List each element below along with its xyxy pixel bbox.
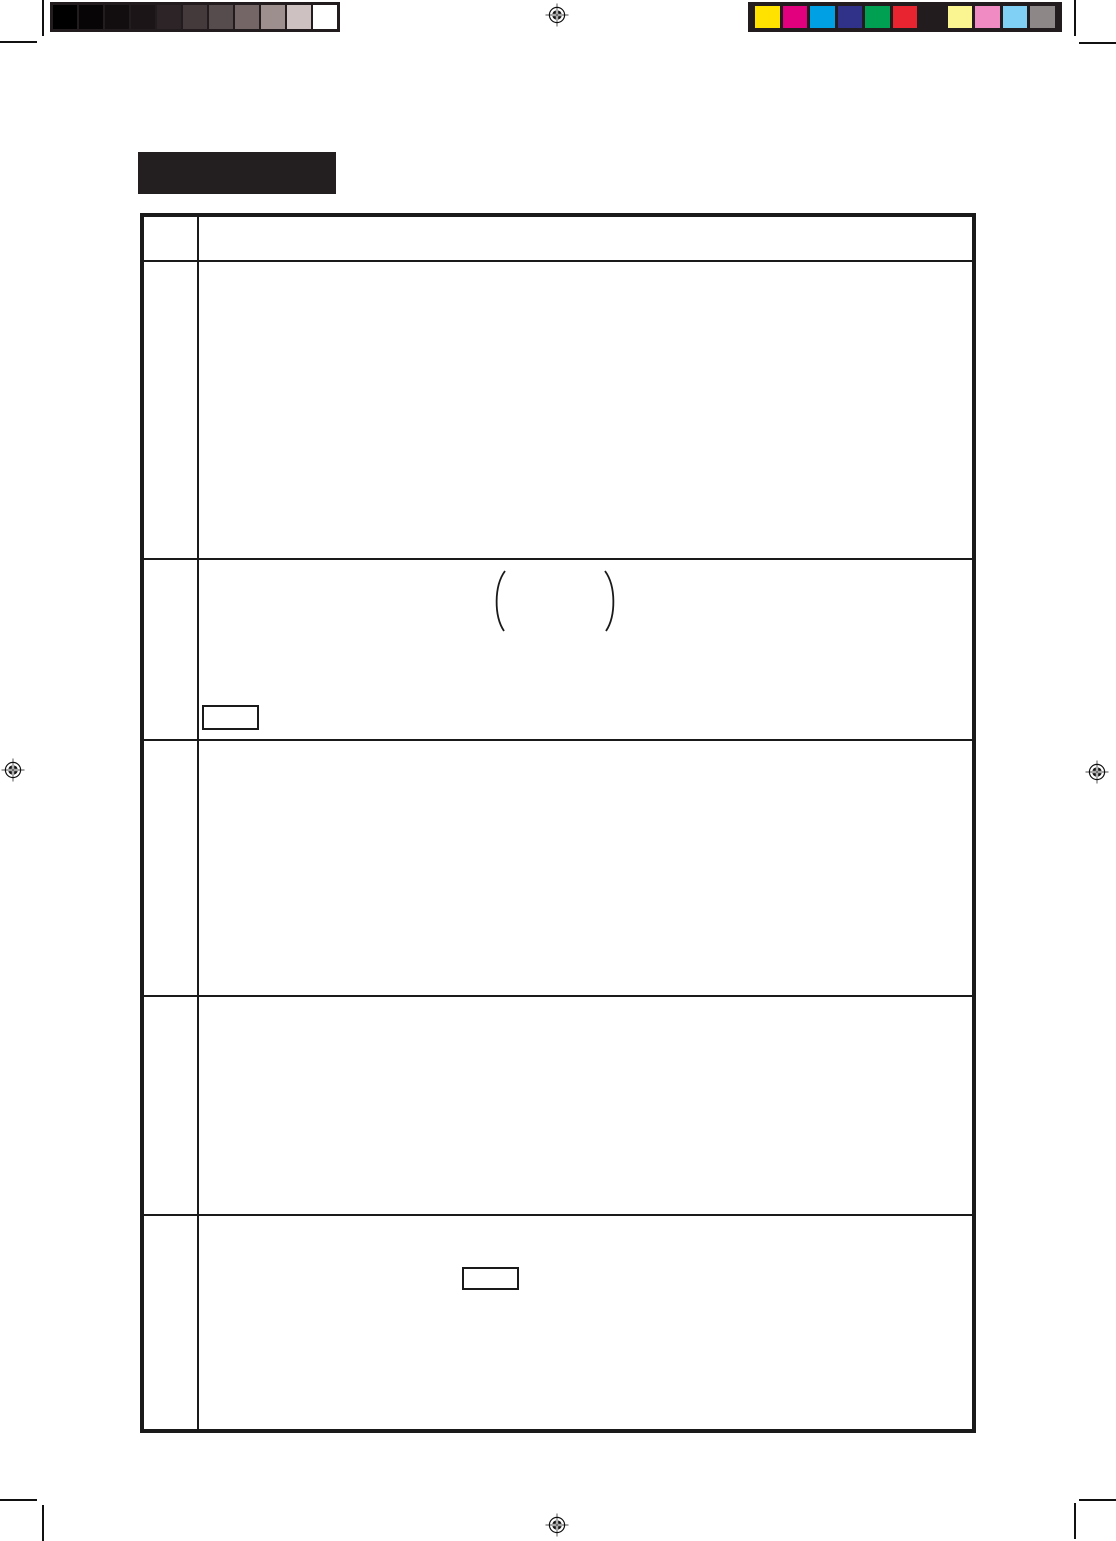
crop-mark [42,0,44,36]
color-calibration-bar [748,2,1062,32]
crop-mark [0,1499,37,1501]
table-row-body-cell [199,560,972,739]
table-row-body-cell [199,217,972,260]
table-row-body-cell [199,997,972,1214]
table-row-body-cell [199,1216,972,1429]
calibration-swatch [105,5,129,29]
table-row-label-cell [144,741,199,995]
calibration-swatch [287,5,311,29]
table-row [144,739,972,995]
crop-mark [1074,0,1076,36]
calibration-swatch [948,6,973,28]
crop-mark [1079,1499,1116,1501]
registration-mark-icon [1,758,25,782]
table-row [144,1214,972,1429]
registration-mark-icon [1085,760,1109,784]
calibration-swatch [209,5,233,29]
calibration-swatch [261,5,285,29]
calibration-swatch [313,5,337,29]
crop-mark [1079,42,1116,44]
table-row-label-cell [144,560,199,739]
calibration-swatch [783,6,808,28]
crop-mark [42,1505,44,1541]
calibration-swatch [235,5,259,29]
calibration-swatch [1003,6,1028,28]
calibration-swatch [755,6,780,28]
crop-mark [1074,1503,1076,1539]
table-row [144,260,972,558]
table-row [144,995,972,1214]
calibration-swatch [838,6,863,28]
calibration-swatch [183,5,207,29]
table-row-label-cell [144,217,199,260]
content-table [140,213,976,1433]
table-row-label-cell [144,997,199,1214]
calibration-swatch [53,5,77,29]
empty-note-box [202,705,259,730]
calibration-swatch [1030,6,1055,28]
calibration-swatch [131,5,155,29]
registration-mark-icon [545,1513,569,1537]
section-title-box [138,152,336,194]
calibration-swatch [157,5,181,29]
empty-note-box [462,1267,519,1290]
calibration-swatch [893,6,918,28]
calibration-swatch [79,5,103,29]
table-row-body-cell [199,262,972,558]
calibration-swatch [920,6,945,28]
registration-mark-icon [545,3,569,27]
table-row [144,217,972,260]
calibration-swatch [975,6,1000,28]
grayscale-calibration-bar [50,2,340,32]
table-row-label-cell [144,1216,199,1429]
calibration-swatch [810,6,835,28]
table-row [144,558,972,739]
calibration-swatch [865,6,890,28]
scanned-manual-page [0,0,1116,1541]
large-parentheses [491,570,619,632]
table-row-label-cell [144,262,199,558]
table-row-body-cell [199,741,972,995]
crop-mark [0,41,37,43]
